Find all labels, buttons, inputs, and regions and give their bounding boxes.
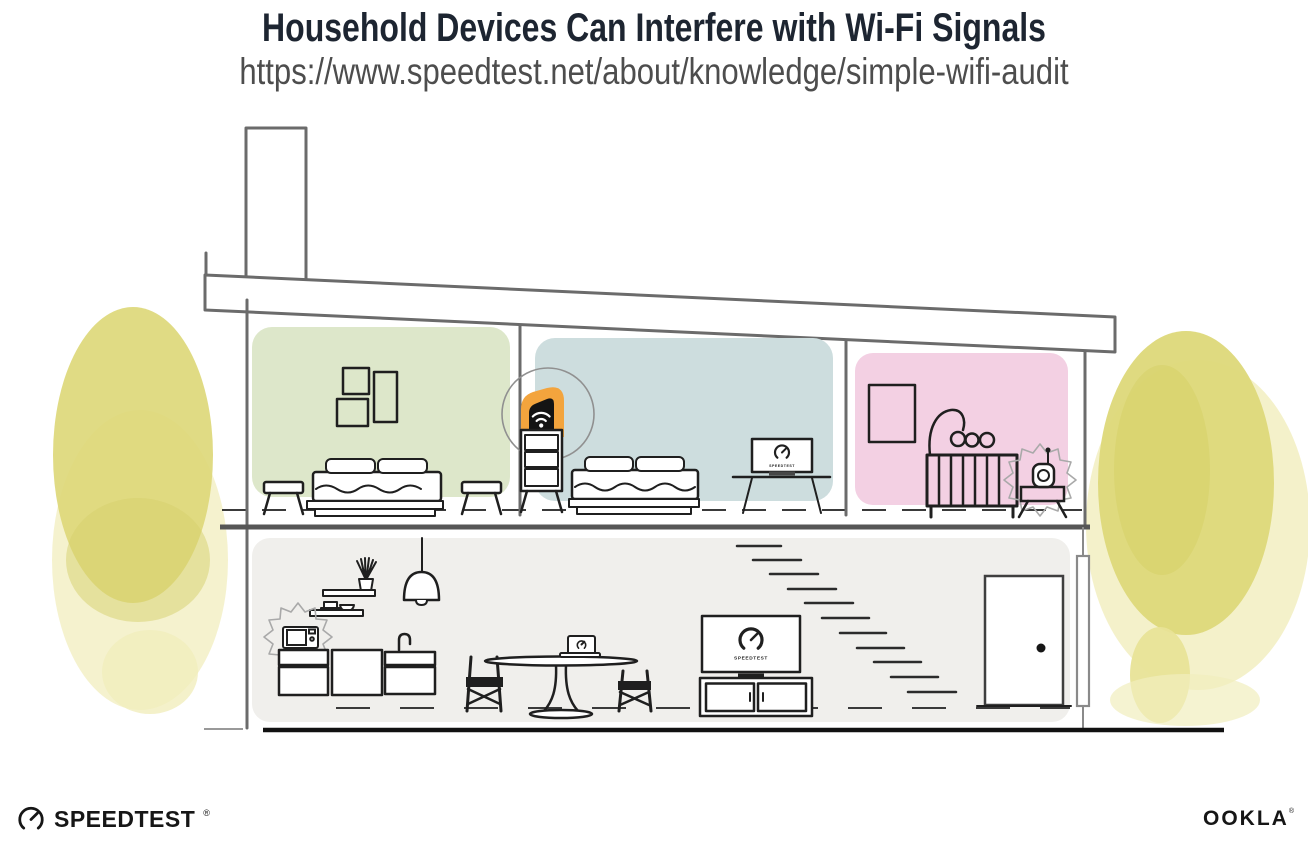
television: SPEEDTEST: [702, 616, 800, 677]
ookla-logo: OOKLA®: [1203, 807, 1294, 831]
wall-shelf: [310, 610, 363, 616]
speedtest-logo: SPEEDTEST®: [16, 804, 210, 834]
ookla-wordmark: OOKLA: [1203, 807, 1289, 831]
microwave: [283, 627, 318, 648]
tree-right: [1086, 331, 1308, 726]
bedroom-laptop: SPEEDTEST: [752, 439, 812, 476]
registered-mark: ®: [1289, 808, 1294, 815]
tv-screen-label: SPEEDTEST: [734, 656, 768, 662]
registered-mark: ®: [203, 808, 210, 818]
speedtest-gauge-icon: [16, 804, 46, 834]
doorknob: [1037, 644, 1046, 653]
speedtest-wordmark: SPEEDTEST: [54, 806, 195, 833]
bed: [307, 459, 443, 516]
house-structure: [205, 128, 1115, 352]
source-url: https://www.speedtest.net/about/knowledg…: [105, 52, 1204, 93]
front-door: [977, 576, 1071, 706]
bedroom-laptop-screen-label: SPEEDTEST: [769, 464, 795, 468]
chimney: [246, 128, 306, 293]
header: Household Devices Can Interfere with Wi-…: [0, 6, 1308, 92]
media-console: [700, 678, 812, 716]
house-cross-section-illustration: SPEEDTEST: [0, 0, 1308, 861]
wall-shelf: [323, 590, 375, 596]
page-title: Household Devices Can Interfere with Wi-…: [131, 6, 1177, 51]
corner-post: [1077, 527, 1089, 729]
bed: [569, 457, 699, 514]
tree-left: [52, 307, 228, 714]
